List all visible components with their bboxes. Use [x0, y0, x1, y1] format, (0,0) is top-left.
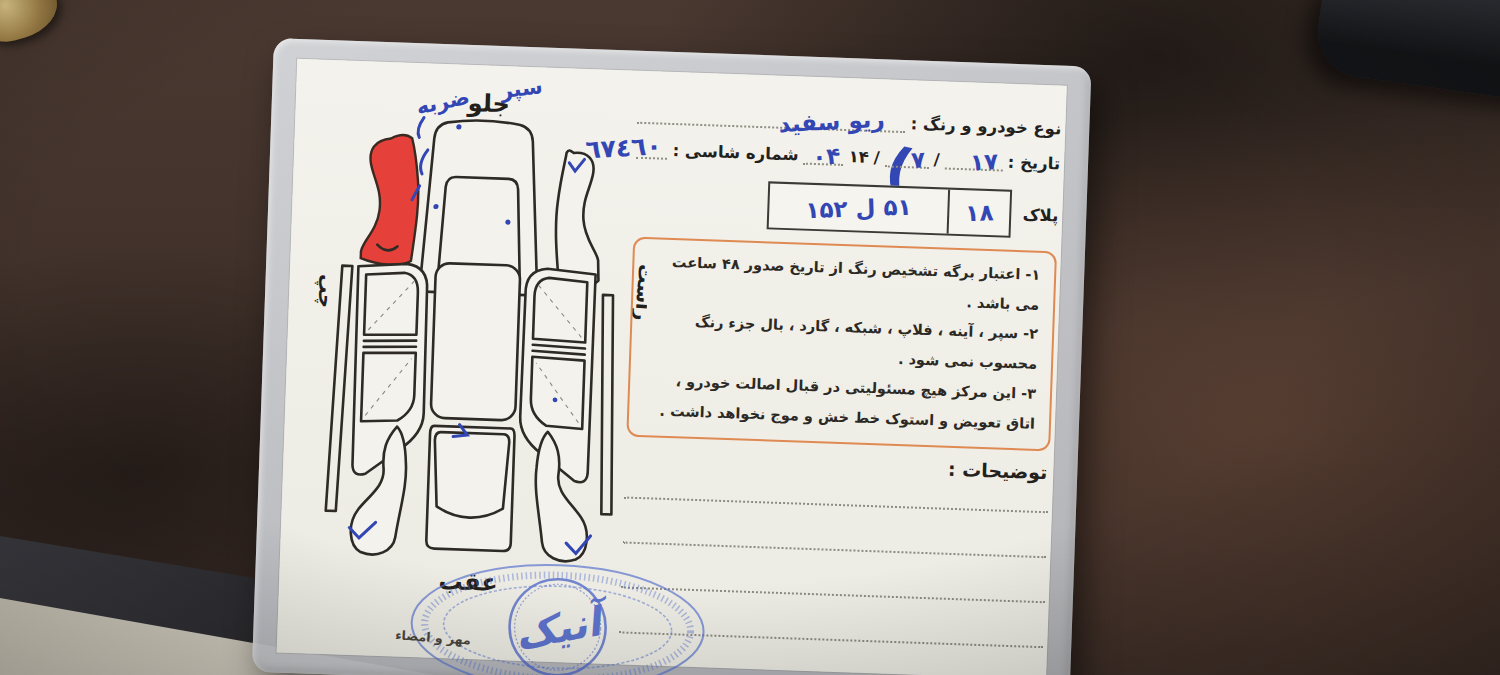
chassis-handwritten: ٦٧٤٦٠ [585, 131, 663, 164]
disclaimer-line-3: ۳- این مرکز هیچ مسئولیتی در قبال اصالت خ… [643, 366, 1037, 439]
plate-number-cell: ۵۱ ل ۱۵۲ [769, 183, 948, 233]
date-day-handwritten: ۱۷ [969, 148, 998, 175]
date-separator: / [873, 148, 880, 167]
trunk [426, 426, 515, 552]
pen-stroke [420, 150, 428, 174]
plate-number-handwritten: ۵۱ ل ۱۵۲ [805, 194, 912, 224]
diagram-left-label: چپ [314, 274, 337, 308]
plate-label: پلاک [1022, 205, 1058, 225]
date-year-prefix: ۱۴ [848, 147, 869, 167]
pen-stroke [418, 117, 424, 137]
date-month-line: ۷ [884, 149, 929, 169]
disclaimer-box: ۱- اعتبار برگه تشخیص رنگ از تاریخ صدور ۴… [626, 237, 1057, 452]
notes-label: توضیحات : [627, 447, 1048, 484]
roof [431, 263, 521, 421]
stapler-body [1312, 0, 1500, 108]
plate-box: ۱۸ ۵۱ ل ۱۵۲ [767, 181, 1013, 237]
date-label: تاریخ : [1007, 153, 1060, 174]
chassis-line: ٦٧٤٦٠ [636, 141, 668, 160]
right-sill [595, 295, 619, 515]
vehicle-type-label: نوع خودرو و رنگ : [910, 114, 1061, 138]
date-day-line: ۱۷ [944, 151, 1003, 171]
plate-region-cell: ۱۸ [947, 190, 1010, 236]
vehicle-type-handwritten: ریو سفید [778, 106, 885, 138]
notes-dotted-line [623, 540, 1047, 559]
date-month-handwritten: ۷ [911, 146, 926, 173]
date-year-handwritten: ۰۴ [812, 143, 841, 170]
date-year-line: ۰۴ [803, 147, 844, 166]
inspection-card: جلو [252, 38, 1092, 675]
company-stamp: آنیک [403, 555, 711, 675]
right-front-fender [554, 150, 603, 290]
vehicle-type-line: ریو سفید [637, 106, 906, 133]
plate-region-handwritten: ۱۸ [965, 199, 994, 226]
card-paper: جلو [277, 59, 1067, 675]
chassis-label: شماره شاسی : [672, 141, 799, 164]
notes-dotted-line [624, 495, 1048, 514]
vehicle-type-row: نوع خودرو و رنگ : ریو سفید [637, 105, 1061, 139]
photo-scene: { "card": { "header": { "vehicle_label":… [0, 0, 1500, 675]
handwritten-bumper-note: سپر [499, 74, 544, 103]
plate-row: پلاک ۱۸ ۵۱ ل ۱۵۲ [634, 177, 1059, 240]
date-separator: / [933, 150, 940, 169]
date-chassis-row: تاریخ : ۱۷ / ۷ / ۱۴ ۰۴ شماره شاسی : ٦٧٤٦… [636, 140, 1060, 174]
